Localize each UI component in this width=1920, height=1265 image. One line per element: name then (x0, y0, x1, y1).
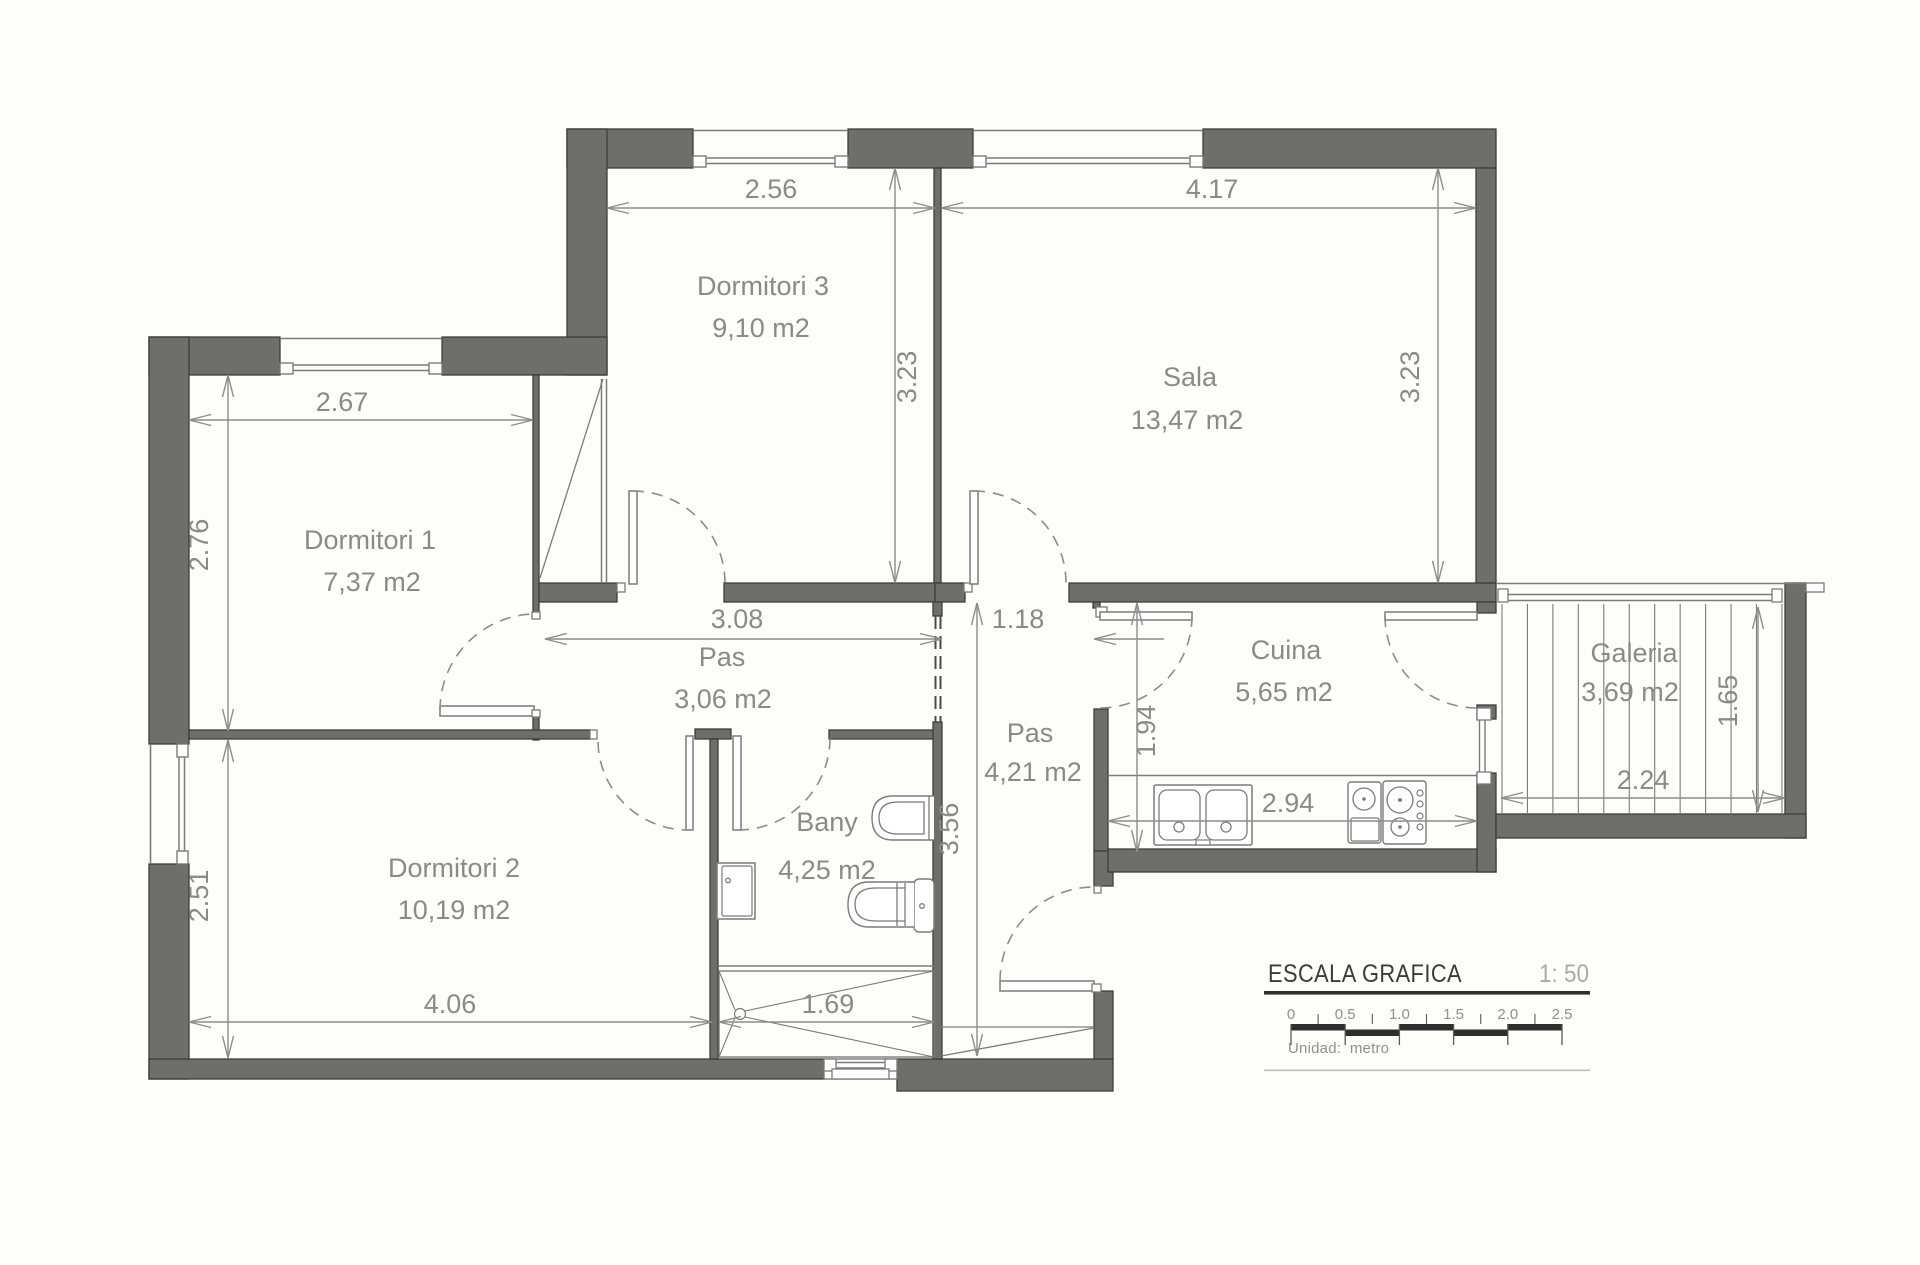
svg-text:Unidad: metro: Unidad: metro (1288, 1040, 1389, 1057)
svg-text:Dormitori 2: Dormitori 2 (388, 853, 520, 883)
svg-text:9,10 m2: 9,10 m2 (712, 313, 810, 343)
svg-text:0.5: 0.5 (1335, 1006, 1356, 1023)
svg-text:2.51: 2.51 (184, 870, 214, 923)
svg-text:Pas: Pas (699, 642, 746, 672)
svg-text:Cuina: Cuina (1251, 635, 1323, 665)
svg-text:3,69 m2: 3,69 m2 (1581, 677, 1679, 707)
svg-text:5,65 m2: 5,65 m2 (1235, 677, 1333, 707)
svg-text:3.23: 3.23 (1395, 351, 1425, 404)
svg-text:2.67: 2.67 (316, 387, 369, 417)
svg-text:Pas: Pas (1007, 718, 1054, 748)
svg-text:2.5: 2.5 (1552, 1006, 1573, 1023)
svg-text:3.56: 3.56 (934, 803, 964, 856)
svg-text:1.65: 1.65 (1713, 675, 1743, 728)
svg-text:13,47 m2: 13,47 m2 (1131, 405, 1244, 435)
svg-text:1: 50: 1: 50 (1539, 960, 1589, 988)
svg-text:2.0: 2.0 (1497, 1006, 1518, 1023)
svg-text:2.94: 2.94 (1262, 788, 1315, 818)
svg-text:Sala: Sala (1163, 362, 1218, 392)
svg-text:1.0: 1.0 (1389, 1006, 1410, 1023)
svg-text:2.24: 2.24 (1617, 765, 1670, 795)
svg-text:4,25 m2: 4,25 m2 (778, 855, 876, 885)
svg-text:Galeria: Galeria (1590, 638, 1678, 668)
svg-text:1.69: 1.69 (802, 989, 855, 1019)
svg-text:Bany: Bany (796, 807, 858, 837)
svg-text:Dormitori 3: Dormitori 3 (697, 271, 829, 301)
svg-text:2.76: 2.76 (184, 519, 214, 572)
svg-text:10,19 m2: 10,19 m2 (398, 895, 511, 925)
svg-text:4,21 m2: 4,21 m2 (984, 757, 1082, 787)
svg-text:1.5: 1.5 (1443, 1006, 1464, 1023)
svg-text:ESCALA GRAFICA: ESCALA GRAFICA (1268, 960, 1462, 988)
svg-text:4.17: 4.17 (1186, 174, 1239, 204)
svg-text:4.06: 4.06 (424, 989, 477, 1019)
svg-text:1.18: 1.18 (992, 604, 1045, 634)
svg-text:0: 0 (1287, 1006, 1295, 1023)
svg-text:3,06 m2: 3,06 m2 (674, 684, 772, 714)
svg-text:3.08: 3.08 (711, 604, 764, 634)
svg-text:1.94: 1.94 (1131, 705, 1161, 758)
svg-text:2.56: 2.56 (745, 174, 798, 204)
svg-text:3.23: 3.23 (892, 351, 922, 404)
svg-text:Dormitori 1: Dormitori 1 (304, 525, 436, 555)
svg-text:7,37 m2: 7,37 m2 (323, 567, 421, 597)
